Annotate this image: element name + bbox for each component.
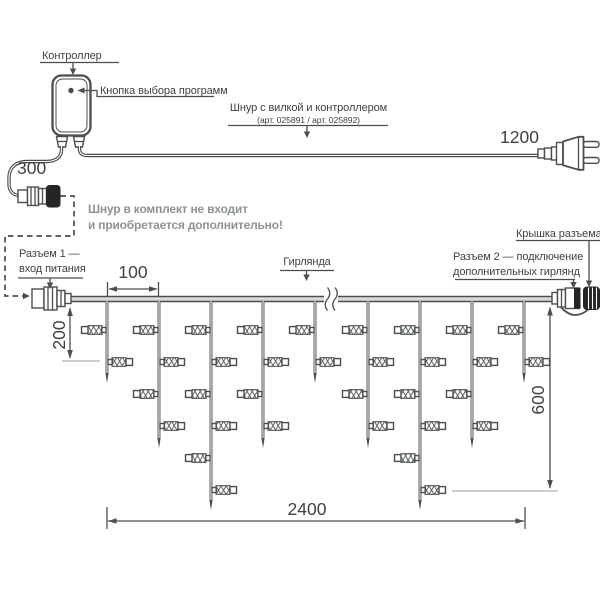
cord-plug-label-line1: Шнур с вилкой и контроллером (228, 101, 389, 116)
lamp-icon (421, 358, 446, 367)
lamp-icon (369, 422, 394, 431)
plug-pin-top (584, 142, 600, 148)
controller-label-pointer (40, 63, 119, 76)
lamp-icon (395, 390, 420, 399)
dim-2400-value: 2400 (276, 500, 338, 518)
diagram-page: Контроллер Кнопка выбора программ Шнур с… (0, 0, 600, 600)
lamp-icon (473, 422, 498, 431)
cord-plug-label: Шнур с вилкой и контроллером (арт. 02589… (228, 101, 389, 125)
garland-drop (238, 301, 289, 448)
lamp-icon (160, 358, 185, 367)
connector2-label-line2: дополнительных гирлянд (453, 265, 577, 280)
connector1-label-line1: Разъем 1 — (19, 247, 86, 262)
cord-plug-label-pointer (228, 126, 388, 139)
connector2-label-pointer (455, 280, 577, 289)
cable-break-symbol (324, 288, 338, 311)
dim-300-value: 300 (17, 159, 46, 177)
lamp-icon (186, 454, 211, 463)
garland-drop (82, 301, 133, 383)
garland-drop (447, 301, 498, 448)
lamp-icon (290, 326, 315, 335)
connector-black-tip (47, 186, 61, 208)
cord-not-included-note: Шнур в комплект не входит и приобретаетс… (88, 202, 283, 233)
lamp-icon (238, 390, 263, 399)
lamp-icon (82, 326, 107, 335)
connector2-label-line1: Разъем 2 — подключение (453, 250, 577, 265)
garland-drop (343, 301, 394, 448)
lamp-icon (369, 358, 394, 367)
lamp-icon (212, 358, 237, 367)
dim-600-value: 600 (529, 380, 547, 420)
lamp-icon (447, 326, 472, 335)
lamp-icon (473, 358, 498, 367)
connector1-label: Разъем 1 — вход питания (19, 247, 86, 276)
dim-1200-value: 1200 (500, 128, 539, 146)
garland-drops (82, 301, 550, 510)
power-plug-icon (538, 137, 599, 170)
lamp-icon (421, 486, 446, 495)
lamp-icon (212, 486, 237, 495)
garland-input-connector (32, 287, 71, 310)
lamp-icon (316, 358, 341, 367)
lamp-icon (108, 358, 133, 367)
controller-box (53, 76, 91, 148)
lamp-icon (134, 326, 159, 335)
dim-100-value: 100 (107, 263, 159, 281)
lamp-icon (264, 358, 289, 367)
lamp-icon (186, 326, 211, 335)
lamp-icon (395, 326, 420, 335)
garland-drop (186, 301, 237, 510)
garland-label-pointer (280, 271, 334, 282)
controller-label: Контроллер (42, 49, 102, 64)
dim-200-value: 200 (50, 315, 68, 355)
connector1-label-line2: вход питания (19, 262, 86, 277)
program-button-dot (68, 88, 73, 93)
lamp-icon (343, 390, 368, 399)
lamp-icon (499, 326, 524, 335)
dim-100-lines (108, 282, 159, 296)
cord-plug-art-numbers: (арт. 025891 / арт. 025892) (228, 116, 389, 126)
lamp-icon (395, 454, 420, 463)
connector2-label: Разъем 2 — подключение дополнительных ги… (453, 250, 577, 279)
plug-cord (80, 146, 539, 156)
garland-label: Гирлянда (280, 255, 334, 270)
plug-pin-bottom (584, 158, 600, 164)
power-cord-connector (18, 186, 60, 208)
garland-drop (290, 301, 341, 383)
lamp-icon (447, 390, 472, 399)
garland-drop (395, 301, 446, 510)
lamp-icon (212, 422, 237, 431)
lamp-icon (343, 326, 368, 335)
lamp-icon (421, 422, 446, 431)
garland-drop (499, 301, 550, 383)
program-button-label: Кнопка выбора программ (100, 84, 228, 99)
lamp-icon (264, 422, 289, 431)
lamp-icon (238, 326, 263, 335)
connector1-label-pointer (18, 278, 83, 289)
cord-not-included-line2: и приобретается дополнительно! (88, 218, 283, 234)
lamp-icon (134, 390, 159, 399)
lamp-icon (186, 390, 211, 399)
cap-label: Крышка разъема (516, 227, 600, 242)
cord-not-included-line1: Шнур в комплект не входит (88, 202, 283, 218)
garland-drop (134, 301, 185, 448)
lamp-icon (160, 422, 185, 431)
connector-cap (584, 287, 600, 310)
lamp-icon (525, 358, 550, 367)
